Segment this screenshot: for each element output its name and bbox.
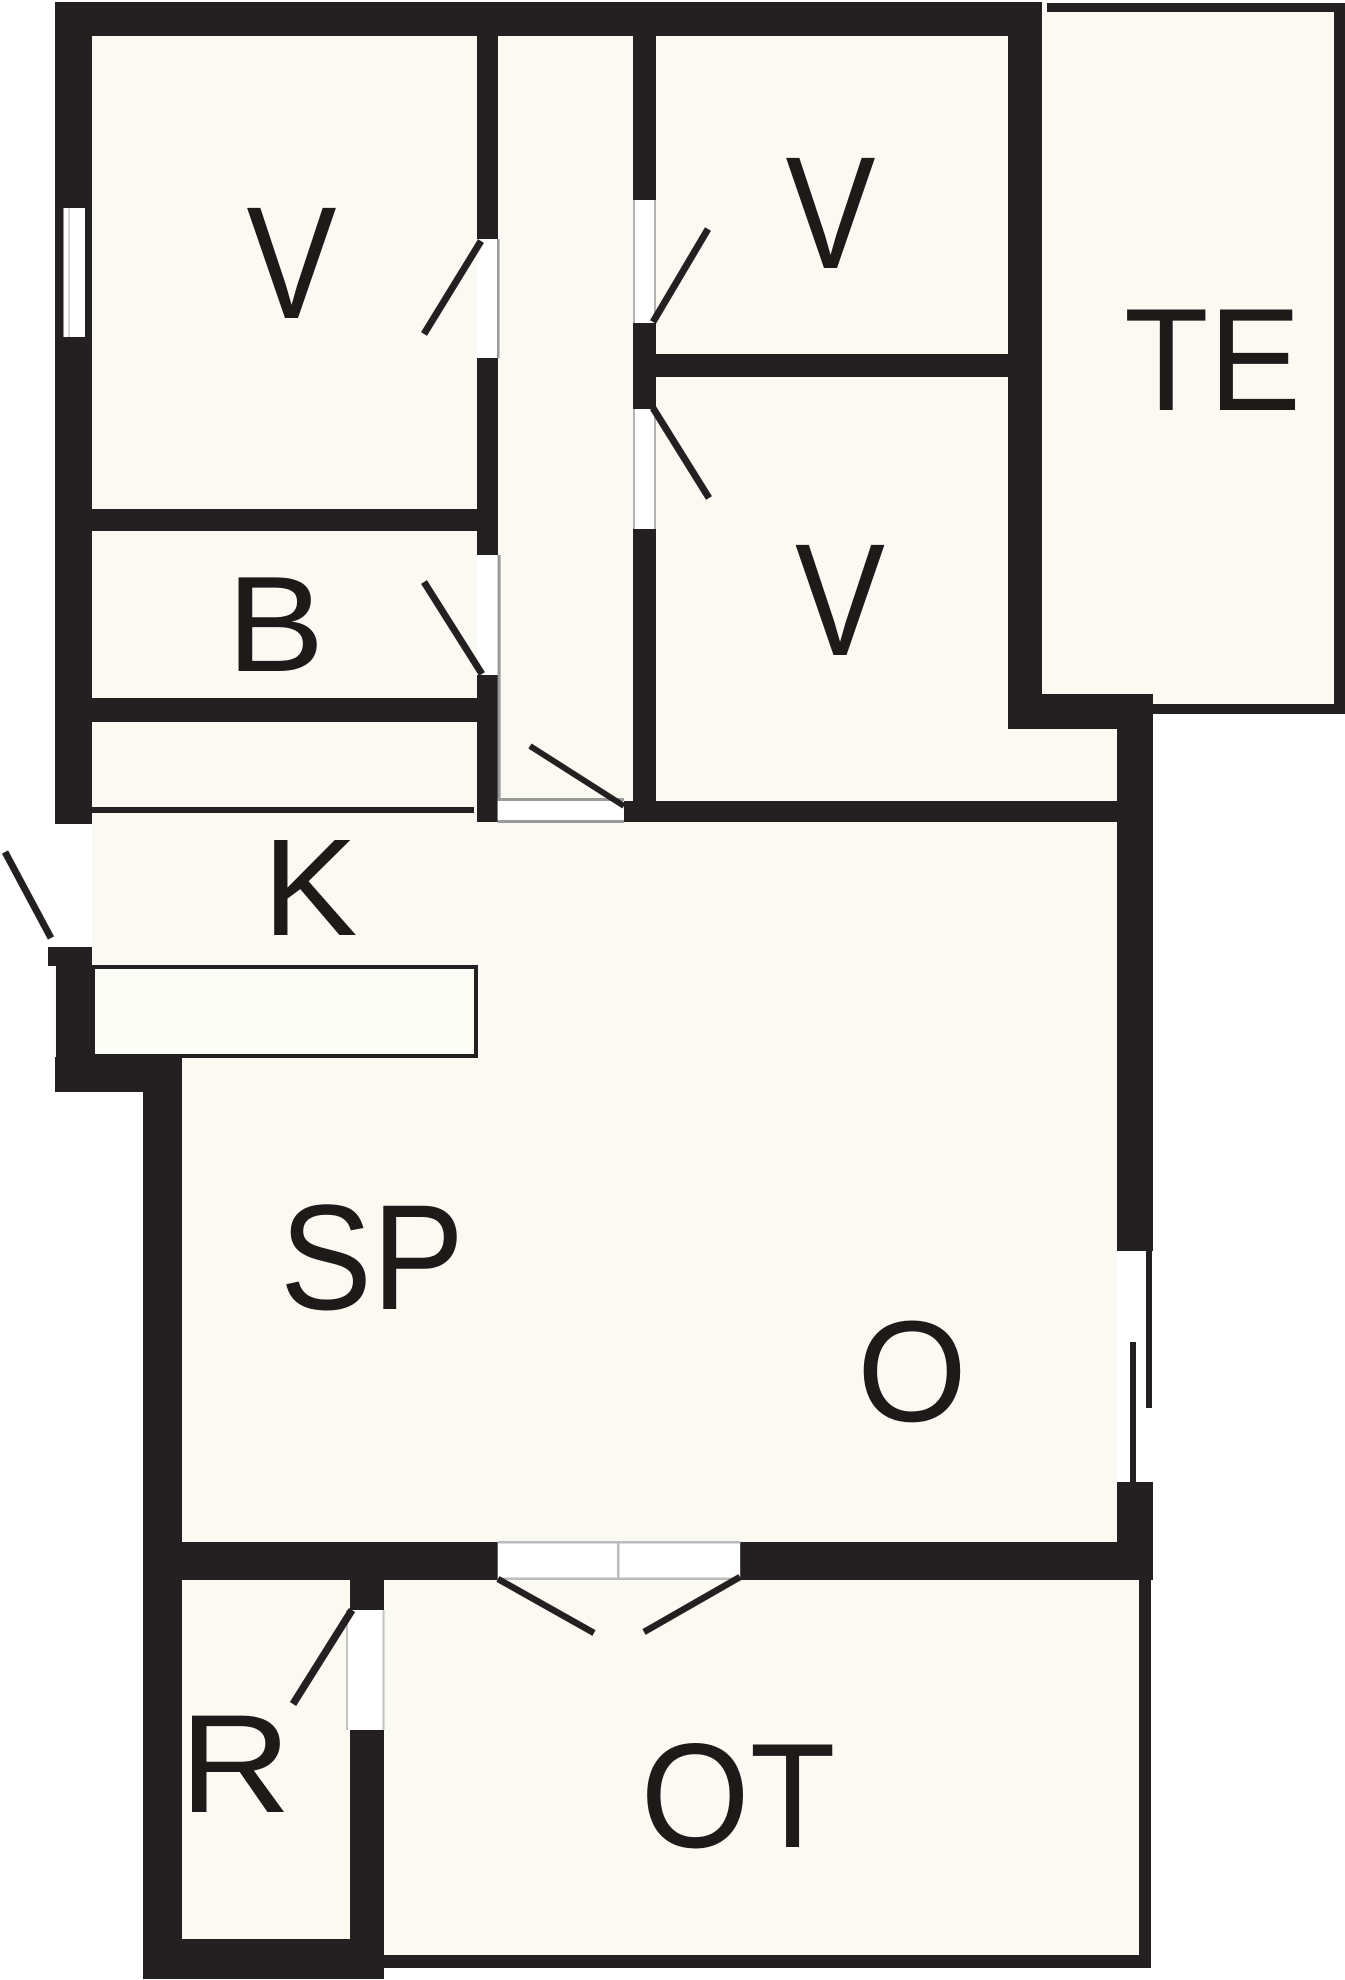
svg-text:V: V [247, 173, 337, 352]
svg-text:SP: SP [280, 1173, 464, 1341]
svg-text:TE: TE [1124, 278, 1301, 441]
svg-text:B: B [227, 548, 325, 700]
svg-text:O: O [857, 1291, 967, 1452]
svg-text:R: R [179, 1685, 291, 1842]
svg-text:V: V [786, 123, 876, 302]
svg-text:K: K [263, 811, 358, 965]
svg-text:OT: OT [641, 1712, 836, 1879]
svg-text:V: V [795, 510, 885, 689]
